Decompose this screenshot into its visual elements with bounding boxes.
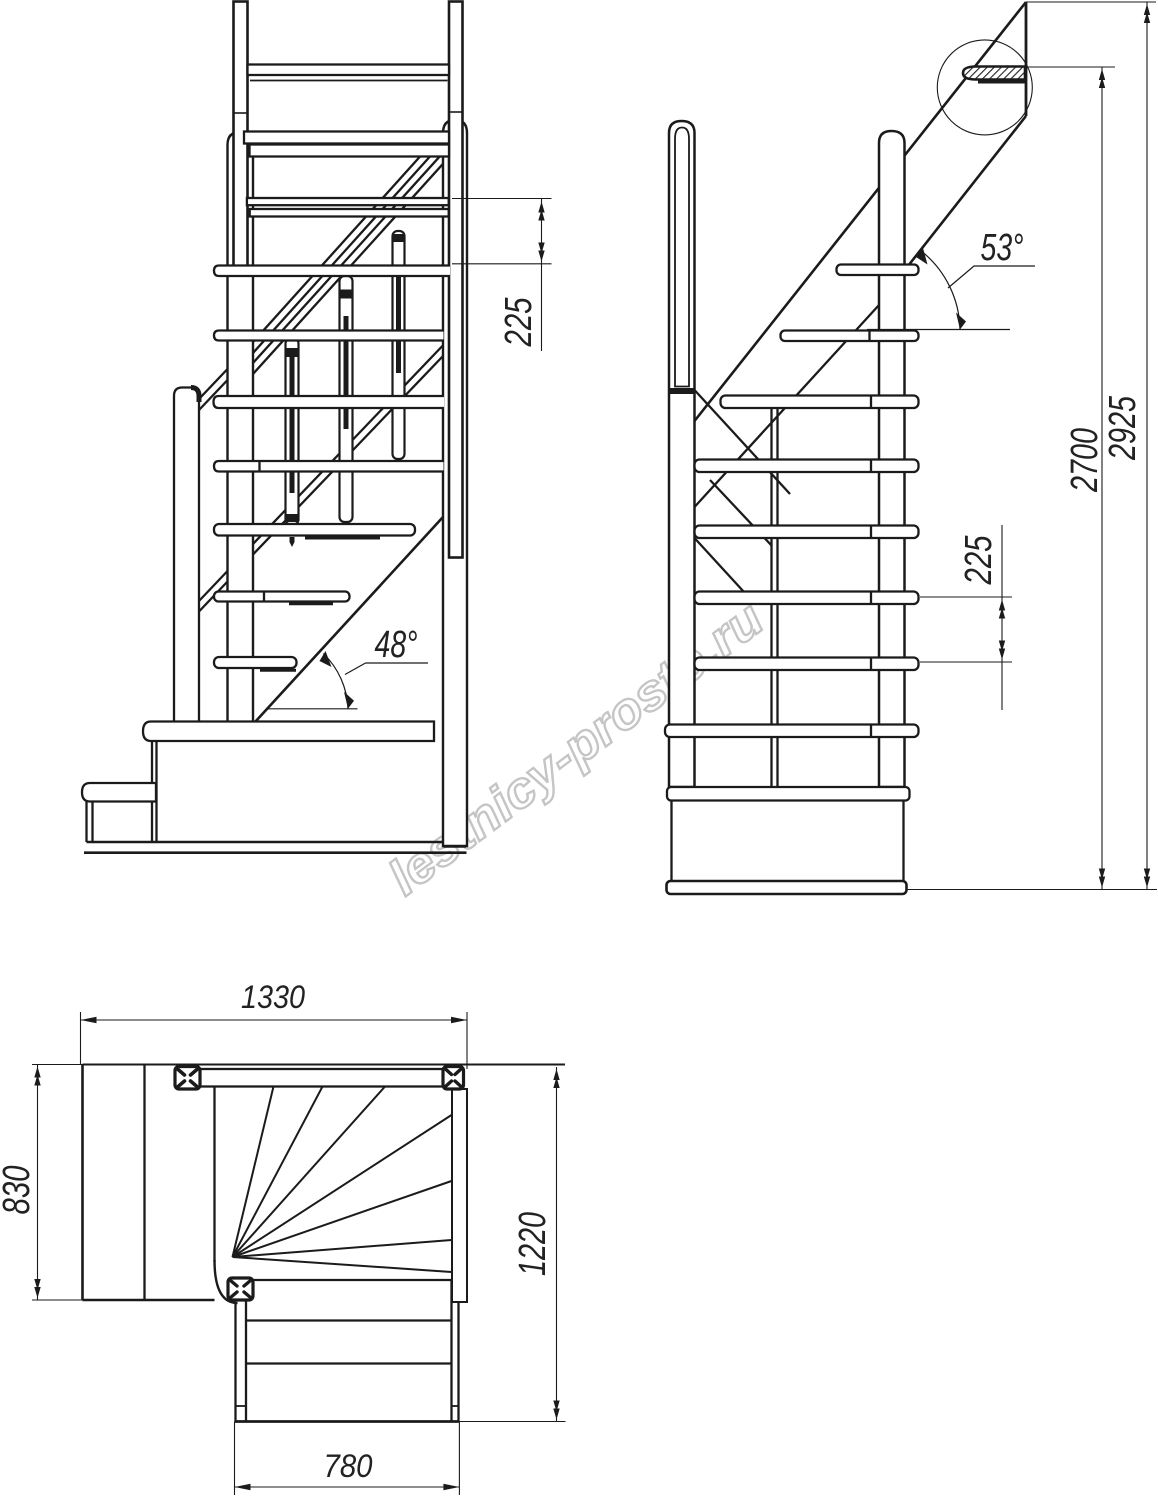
svg-text:830: 830 [0, 1166, 38, 1215]
svg-text:1330: 1330 [241, 979, 305, 1015]
svg-text:48°: 48° [375, 624, 418, 666]
svg-text:225: 225 [498, 297, 540, 347]
svg-text:2700: 2700 [1064, 428, 1106, 493]
svg-text:780: 780 [324, 1448, 373, 1484]
svg-text:225: 225 [958, 535, 1000, 585]
svg-text:53°: 53° [981, 227, 1024, 269]
svg-text:1220: 1220 [512, 1212, 554, 1276]
svg-text:2925: 2925 [1102, 395, 1144, 460]
